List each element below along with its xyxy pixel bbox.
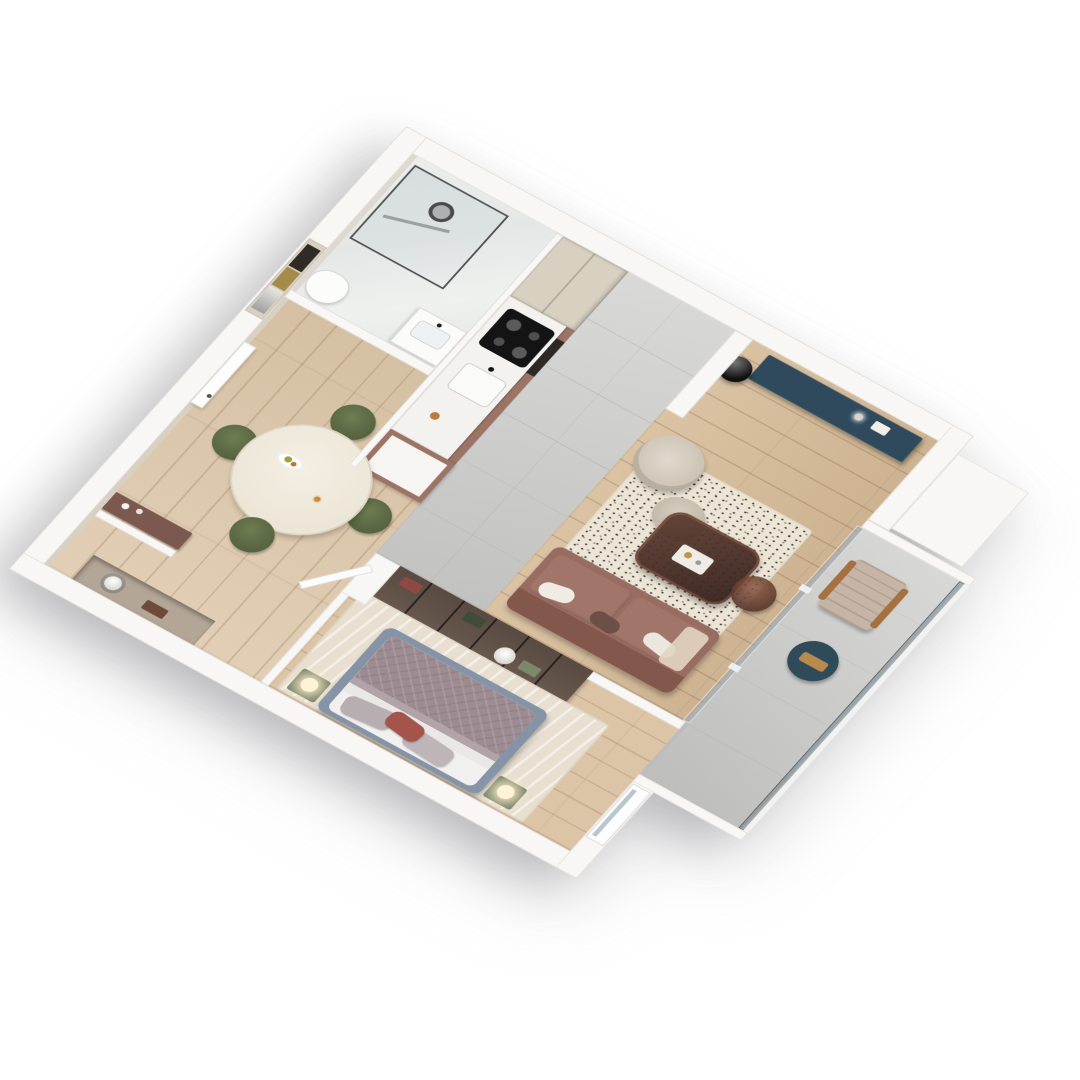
isometric-scene bbox=[9, 126, 1071, 932]
render-canvas bbox=[0, 0, 1080, 1080]
apartment-floor-plan bbox=[9, 126, 1071, 932]
